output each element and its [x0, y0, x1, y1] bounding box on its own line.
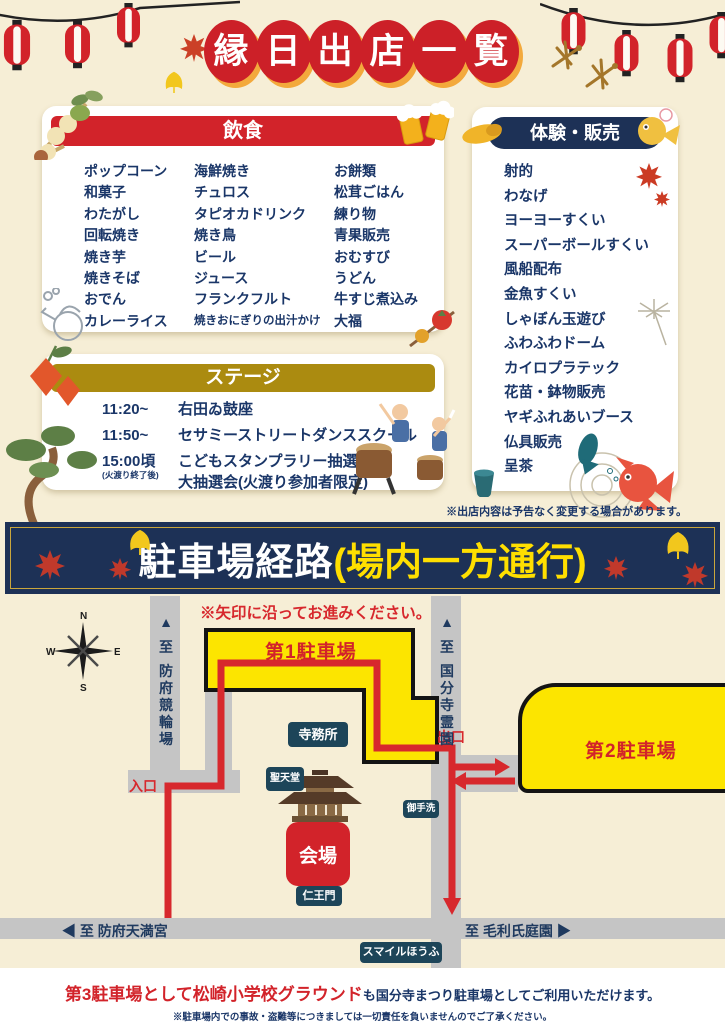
food-card: 飲食 ポップコーン和菓子わたがし回転焼き焼き芋焼きそばおでんカレーライス海鮮焼き…: [42, 106, 444, 332]
experience-item: 金魚すくい: [504, 283, 649, 308]
stage-time: 11:20~: [102, 400, 178, 421]
smile-hofu-badge: スマイルほうふ: [360, 942, 442, 963]
lot2-label: 第2駐車場: [585, 736, 677, 763]
sweet-potato-icon: [460, 121, 506, 147]
food-item: ジュース: [194, 268, 321, 289]
food-item: うどん: [334, 268, 418, 289]
maple-leaf-icon: [654, 191, 670, 207]
title-char: 一: [412, 20, 467, 83]
food-item: おでん: [84, 289, 168, 310]
experience-item: しゃぼん玉遊び: [504, 308, 649, 333]
maple-leaf-icon: [682, 562, 708, 588]
food-item: 回転焼き: [84, 225, 168, 246]
pine-tree-icon: [0, 416, 106, 524]
food-item: 和菓子: [84, 182, 168, 203]
ginkgo-leaf-icon: [664, 530, 692, 560]
parking-banner-title: 駐車場経路: [138, 531, 333, 586]
title-char: 店: [360, 20, 415, 83]
stalls-disclaimer: ※出店内容は予告なく変更する場合があります。: [446, 503, 687, 519]
food-card-header: 飲食: [51, 116, 435, 146]
stage-event: こどもスタンプラリー抽選会: [178, 452, 373, 471]
food-item: わたがし: [84, 204, 168, 225]
food-item: ビール: [194, 247, 321, 268]
parking-banner-subtitle: (場内一方通行): [333, 531, 586, 586]
food-item: ポップコーン: [84, 161, 168, 182]
food-item: 海鮮焼き: [194, 161, 321, 182]
food-item: カレーライス: [84, 311, 168, 332]
taiko-drummers-icon: [346, 394, 456, 498]
otearai-badge: 御手洗: [403, 800, 439, 818]
experience-item: 射的: [504, 160, 649, 185]
footer-lot3-rest: も国分寺まつり駐車場としてご利用いただけます。: [363, 988, 660, 1003]
title-char: 日: [256, 20, 311, 83]
tea-cup-icon: [470, 467, 498, 497]
stage-event: 大抽選会(火渡り参加者限定): [178, 473, 373, 492]
experience-item: わなげ: [504, 185, 649, 210]
kettle-icon: [36, 288, 90, 346]
experience-item: カイロプラテック: [504, 357, 649, 382]
title-char: 覧: [464, 20, 519, 83]
title-char: 出: [308, 20, 363, 83]
stage-time-note: (火渡り終了後): [102, 471, 178, 480]
maple-leaf-icon: [636, 163, 662, 189]
food-item: 青果販売: [334, 225, 418, 246]
experience-item: スーパーボールすくい: [504, 234, 649, 259]
entrance-label: 入口: [129, 776, 157, 796]
teal-fish-icon: [574, 431, 618, 481]
stage-event: 右田ゐ鼓座: [178, 400, 253, 419]
food-item: 焼き鳥: [194, 225, 321, 246]
food-item: 焼きそば: [84, 268, 168, 289]
food-item: フランクフルト: [194, 289, 321, 310]
food-item: お餅類: [334, 161, 418, 182]
food-item: 松茸ごはん: [334, 182, 418, 203]
temple-office-badge: 寺務所: [288, 722, 348, 747]
shotendo-badge: 聖天堂: [266, 767, 304, 791]
lot1-label: 第1駐車場: [265, 637, 357, 664]
food-item: チュロス: [194, 182, 321, 203]
stage-card-header: ステージ: [51, 364, 435, 392]
road-label-mori: 至 毛利氏庭園 ▶: [465, 921, 571, 941]
ginkgo-leaf-icon: [163, 70, 185, 94]
experience-item: ふわふわドーム: [504, 332, 649, 357]
maple-leaf-icon: [604, 556, 628, 580]
tomato-skewer-icon: [406, 304, 458, 350]
experience-item: ヨーヨーすくい: [504, 209, 649, 234]
food-item: タピオカドリンク: [194, 204, 321, 225]
festival-flyer-poster: 縁日出店一覧 飲食 ポップコーン和菓子わたがし回転焼き焼き芋焼きそばおでんカレー…: [0, 0, 725, 1024]
parking-banner: 駐車場経路(場内一方通行): [5, 522, 720, 594]
maple-leaf-icon: [109, 558, 131, 580]
hozuki-icon: [26, 342, 88, 414]
goldfish-yellow-icon: [630, 105, 682, 153]
food-item: 焼きおにぎりの出汁かけ: [194, 311, 321, 332]
stage-card: ステージ 11:20~右田ゐ鼓座11:50~セサミーストリートダンススクール15…: [42, 354, 444, 490]
road-label-tenmangu: ◀ 至 防府天満宮: [62, 921, 168, 941]
footer-lot3-highlight: 第3駐車場として松崎小学校グラウンド: [65, 985, 363, 1004]
beer-mugs-icon: [396, 96, 454, 152]
dango-icon: [34, 94, 100, 160]
road-label-reien: ▲ 至 国分寺霊園: [437, 614, 457, 749]
maple-leaf-icon: [35, 550, 65, 580]
nioumon-badge: 仁王門: [296, 886, 342, 906]
title-char: 縁: [204, 20, 259, 83]
ginkgo-leaf-icon: [127, 528, 153, 556]
venue-marker: 会場: [286, 822, 350, 886]
footer-liability-note: ※駐車場内での事故・盗難等につきましては一切責任を負いませんのでご了承ください。: [0, 1009, 725, 1023]
road-label-keirin: ▲ 至 防府競輪場: [156, 614, 176, 749]
food-item: 練り物: [334, 204, 418, 225]
page-title: 縁日出店一覧: [207, 20, 519, 83]
food-item: 焼き芋: [84, 247, 168, 268]
stage-time: 15:00頃(火渡り終了後): [102, 452, 178, 494]
experience-item: 風船配布: [504, 258, 649, 283]
food-item: おむすび: [334, 247, 418, 268]
experience-card: 体験・販売 射的わなげヨーヨーすくいスーパーボールすくい風船配布金魚すくいしゃぼ…: [472, 107, 678, 491]
stage-time: 11:50~: [102, 426, 178, 447]
footer-notes: 第3駐車場として松崎小学校グラウンドも国分寺まつり駐車場としてご利用いただけます…: [0, 968, 725, 1024]
sparkler-icon: [632, 297, 676, 347]
experience-item: 花苗・鉢物販売: [504, 381, 649, 406]
dragonfly-icon: [545, 36, 625, 91]
